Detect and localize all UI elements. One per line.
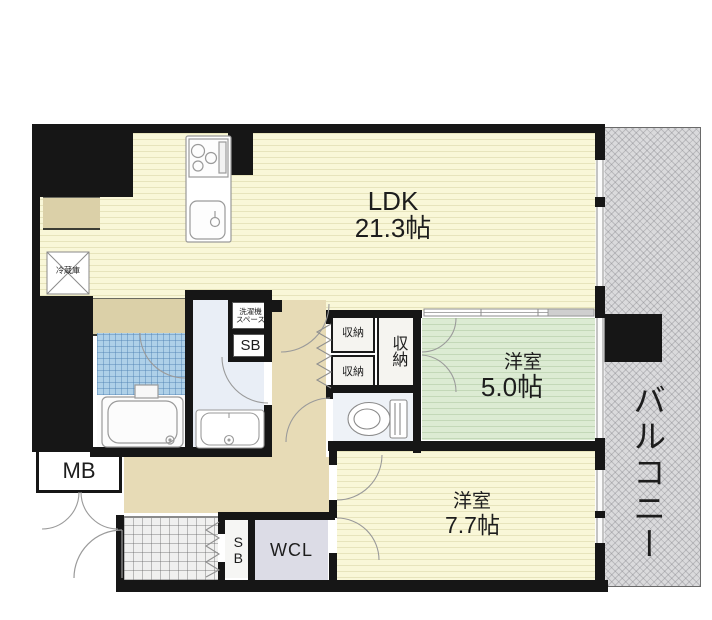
double-door-mb bbox=[42, 492, 118, 529]
western77-room-name: 洋室 bbox=[427, 492, 517, 512]
wall bbox=[329, 553, 337, 583]
wall bbox=[228, 133, 253, 175]
storage-box-c: 収納 bbox=[377, 311, 417, 391]
counter-strip bbox=[93, 298, 185, 336]
kitchen-counter-strip bbox=[43, 197, 100, 230]
wall bbox=[595, 543, 605, 592]
western5-room-size: 5.0帖 bbox=[457, 374, 567, 401]
balcony-pillar bbox=[598, 314, 662, 362]
wall bbox=[264, 290, 272, 360]
floor-plan: 収納 収納 収納 WCL 洗濯機 スペース SB MB bbox=[0, 0, 712, 620]
wall bbox=[185, 296, 193, 336]
wall bbox=[32, 124, 133, 197]
wall bbox=[595, 197, 605, 207]
wall bbox=[329, 451, 337, 465]
sb-washroom-label: SB bbox=[240, 338, 260, 354]
wall bbox=[185, 333, 193, 455]
entrance-door bbox=[74, 530, 122, 578]
wall bbox=[329, 385, 418, 393]
wall bbox=[185, 290, 272, 300]
wcl-room: WCL bbox=[255, 520, 328, 580]
entrance-genkan-tile bbox=[124, 518, 218, 580]
western77-room-size: 7.7帖 bbox=[425, 513, 520, 537]
wall bbox=[90, 447, 272, 457]
wall bbox=[595, 438, 605, 470]
sb-entrance-label: SB bbox=[225, 524, 251, 576]
wall bbox=[32, 296, 93, 452]
corridor-floor bbox=[124, 457, 329, 513]
wall bbox=[264, 405, 272, 457]
wall bbox=[413, 310, 421, 453]
western5-room-name: 洋室 bbox=[478, 353, 568, 373]
bathroom-tile-floor bbox=[97, 333, 185, 395]
mb-label: MB bbox=[63, 459, 96, 482]
wall bbox=[326, 310, 333, 324]
wall bbox=[218, 512, 252, 520]
hallway-floor bbox=[272, 300, 326, 457]
storage-c-label: 収納 bbox=[389, 335, 406, 367]
wall bbox=[218, 562, 225, 580]
wall bbox=[116, 580, 608, 592]
refrigerator-label: 冷蔵庫 bbox=[47, 267, 89, 275]
storage-b-label: 収納 bbox=[342, 367, 364, 379]
storage-box-a: 収納 bbox=[331, 314, 375, 353]
ldk-room-name: LDK bbox=[338, 188, 448, 215]
ldk-room-size: 21.3帖 bbox=[328, 215, 458, 242]
wcl-label: WCL bbox=[270, 541, 313, 560]
wall bbox=[272, 300, 282, 312]
wall bbox=[595, 511, 605, 518]
wall bbox=[218, 520, 225, 534]
laundry-space-label: 洗濯機 スペース bbox=[236, 308, 265, 324]
storage-a-label: 収納 bbox=[342, 328, 364, 340]
sb-washroom-box: SB bbox=[233, 334, 268, 357]
toilet-room-floor bbox=[333, 393, 413, 442]
balcony-label: バルコニー bbox=[629, 383, 664, 578]
wall bbox=[328, 441, 602, 451]
wall bbox=[248, 512, 335, 520]
bathroom-tub-area bbox=[97, 395, 185, 447]
wall bbox=[326, 310, 422, 318]
wall bbox=[595, 124, 605, 160]
